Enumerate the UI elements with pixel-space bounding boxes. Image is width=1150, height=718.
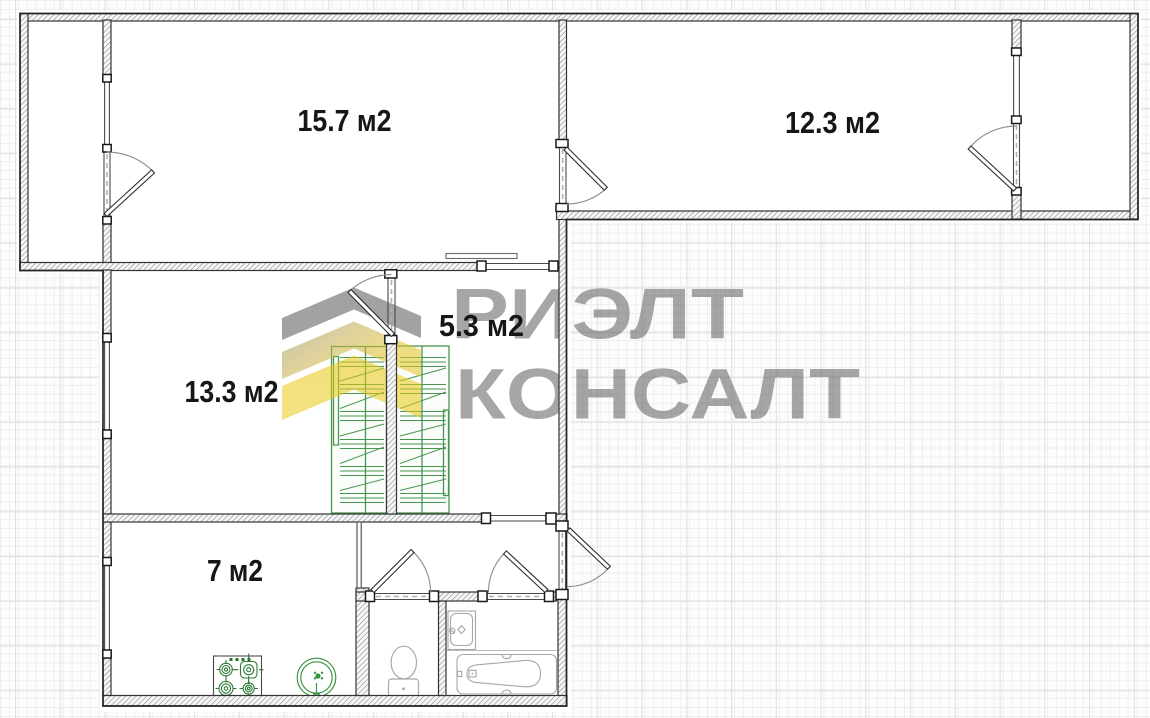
svg-text:15.7 м2: 15.7 м2 xyxy=(298,104,392,138)
svg-text:13.3 м2: 13.3 м2 xyxy=(185,375,279,409)
svg-text:КОНСАЛТ: КОНСАЛТ xyxy=(455,356,860,435)
svg-text:12.3 м2: 12.3 м2 xyxy=(785,106,880,140)
svg-text:7 м2: 7 м2 xyxy=(207,554,263,588)
svg-text:5.3 м2: 5.3 м2 xyxy=(439,309,524,343)
